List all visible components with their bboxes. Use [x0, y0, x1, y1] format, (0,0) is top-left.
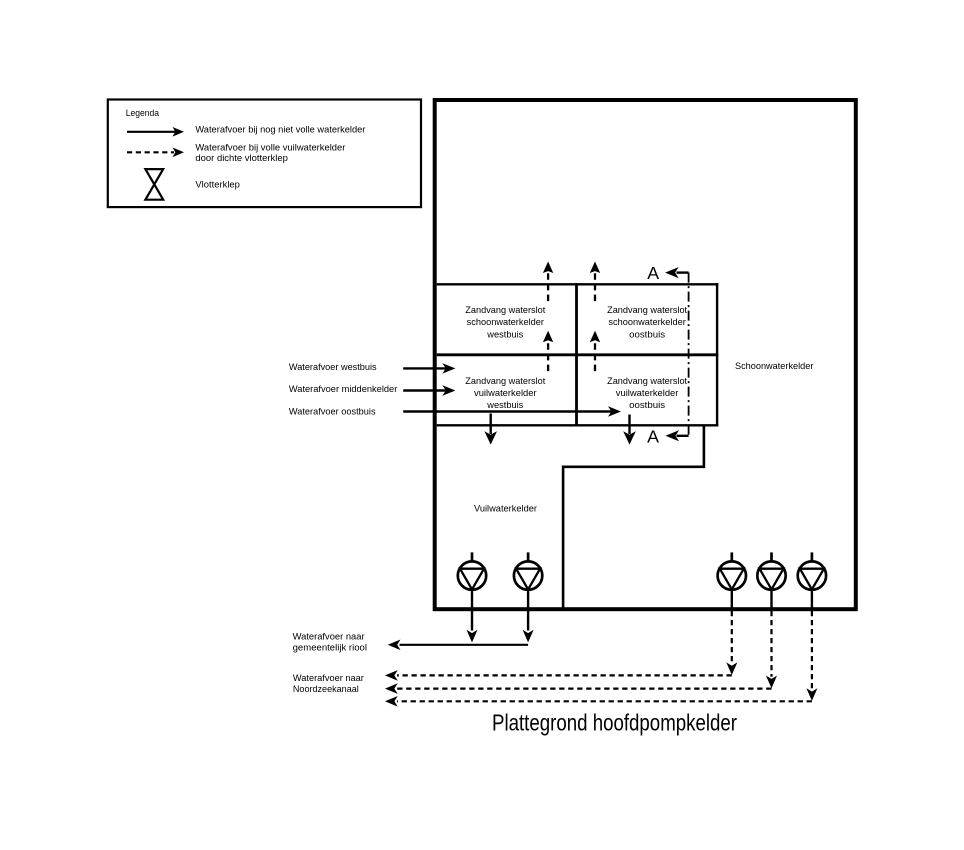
svg-text:westbuis: westbuis [486, 400, 524, 410]
svg-text:Waterafvoer bij volle vuilwate: Waterafvoer bij volle vuilwaterkelder [195, 143, 345, 153]
svg-text:Plattegrond hoofdpompkelder: Plattegrond hoofdpompkelder [492, 709, 737, 735]
svg-text:Noordzeekanaal: Noordzeekanaal [293, 684, 359, 694]
svg-text:westbuis: westbuis [486, 329, 524, 339]
svg-text:schoonwaterkelder: schoonwaterkelder [467, 317, 544, 327]
svg-text:Vuilwaterkelder: Vuilwaterkelder [474, 504, 537, 514]
svg-text:gemeentelijk riool: gemeentelijk riool [293, 643, 367, 653]
svg-text:A: A [647, 263, 659, 283]
svg-text:Waterafvoer middenkelder: Waterafvoer middenkelder [289, 384, 397, 394]
svg-text:Vlotterklep: Vlotterklep [195, 179, 240, 189]
svg-text:Legenda: Legenda [126, 108, 159, 118]
svg-text:A: A [647, 426, 659, 446]
svg-text:Waterafvoer naar: Waterafvoer naar [293, 632, 365, 642]
svg-text:Zandvang waterslot: Zandvang waterslot [465, 305, 546, 315]
svg-text:vuilwaterkelder: vuilwaterkelder [616, 388, 679, 398]
svg-text:vuilwaterkelder: vuilwaterkelder [474, 388, 537, 398]
svg-text:Zandvang waterslot: Zandvang waterslot [465, 376, 546, 386]
svg-text:door dichte vlotterklep: door dichte vlotterklep [195, 153, 288, 163]
svg-text:oostbuis: oostbuis [629, 329, 666, 339]
svg-text:Zandvang waterslot: Zandvang waterslot [607, 305, 688, 315]
svg-text:Zandvang waterslot: Zandvang waterslot [607, 376, 688, 386]
svg-text:Schoonwaterkelder: Schoonwaterkelder [735, 361, 813, 371]
svg-text:schoonwaterkelder: schoonwaterkelder [608, 317, 685, 327]
svg-text:Waterafvoer westbuis: Waterafvoer westbuis [289, 362, 377, 372]
svg-text:Waterafvoer naar: Waterafvoer naar [293, 673, 364, 683]
svg-text:Waterafvoer oostbuis: Waterafvoer oostbuis [289, 407, 376, 417]
svg-text:Waterafvoer bij nog niet volle: Waterafvoer bij nog niet volle waterkeld… [195, 124, 365, 134]
svg-text:oostbuis: oostbuis [629, 400, 666, 410]
